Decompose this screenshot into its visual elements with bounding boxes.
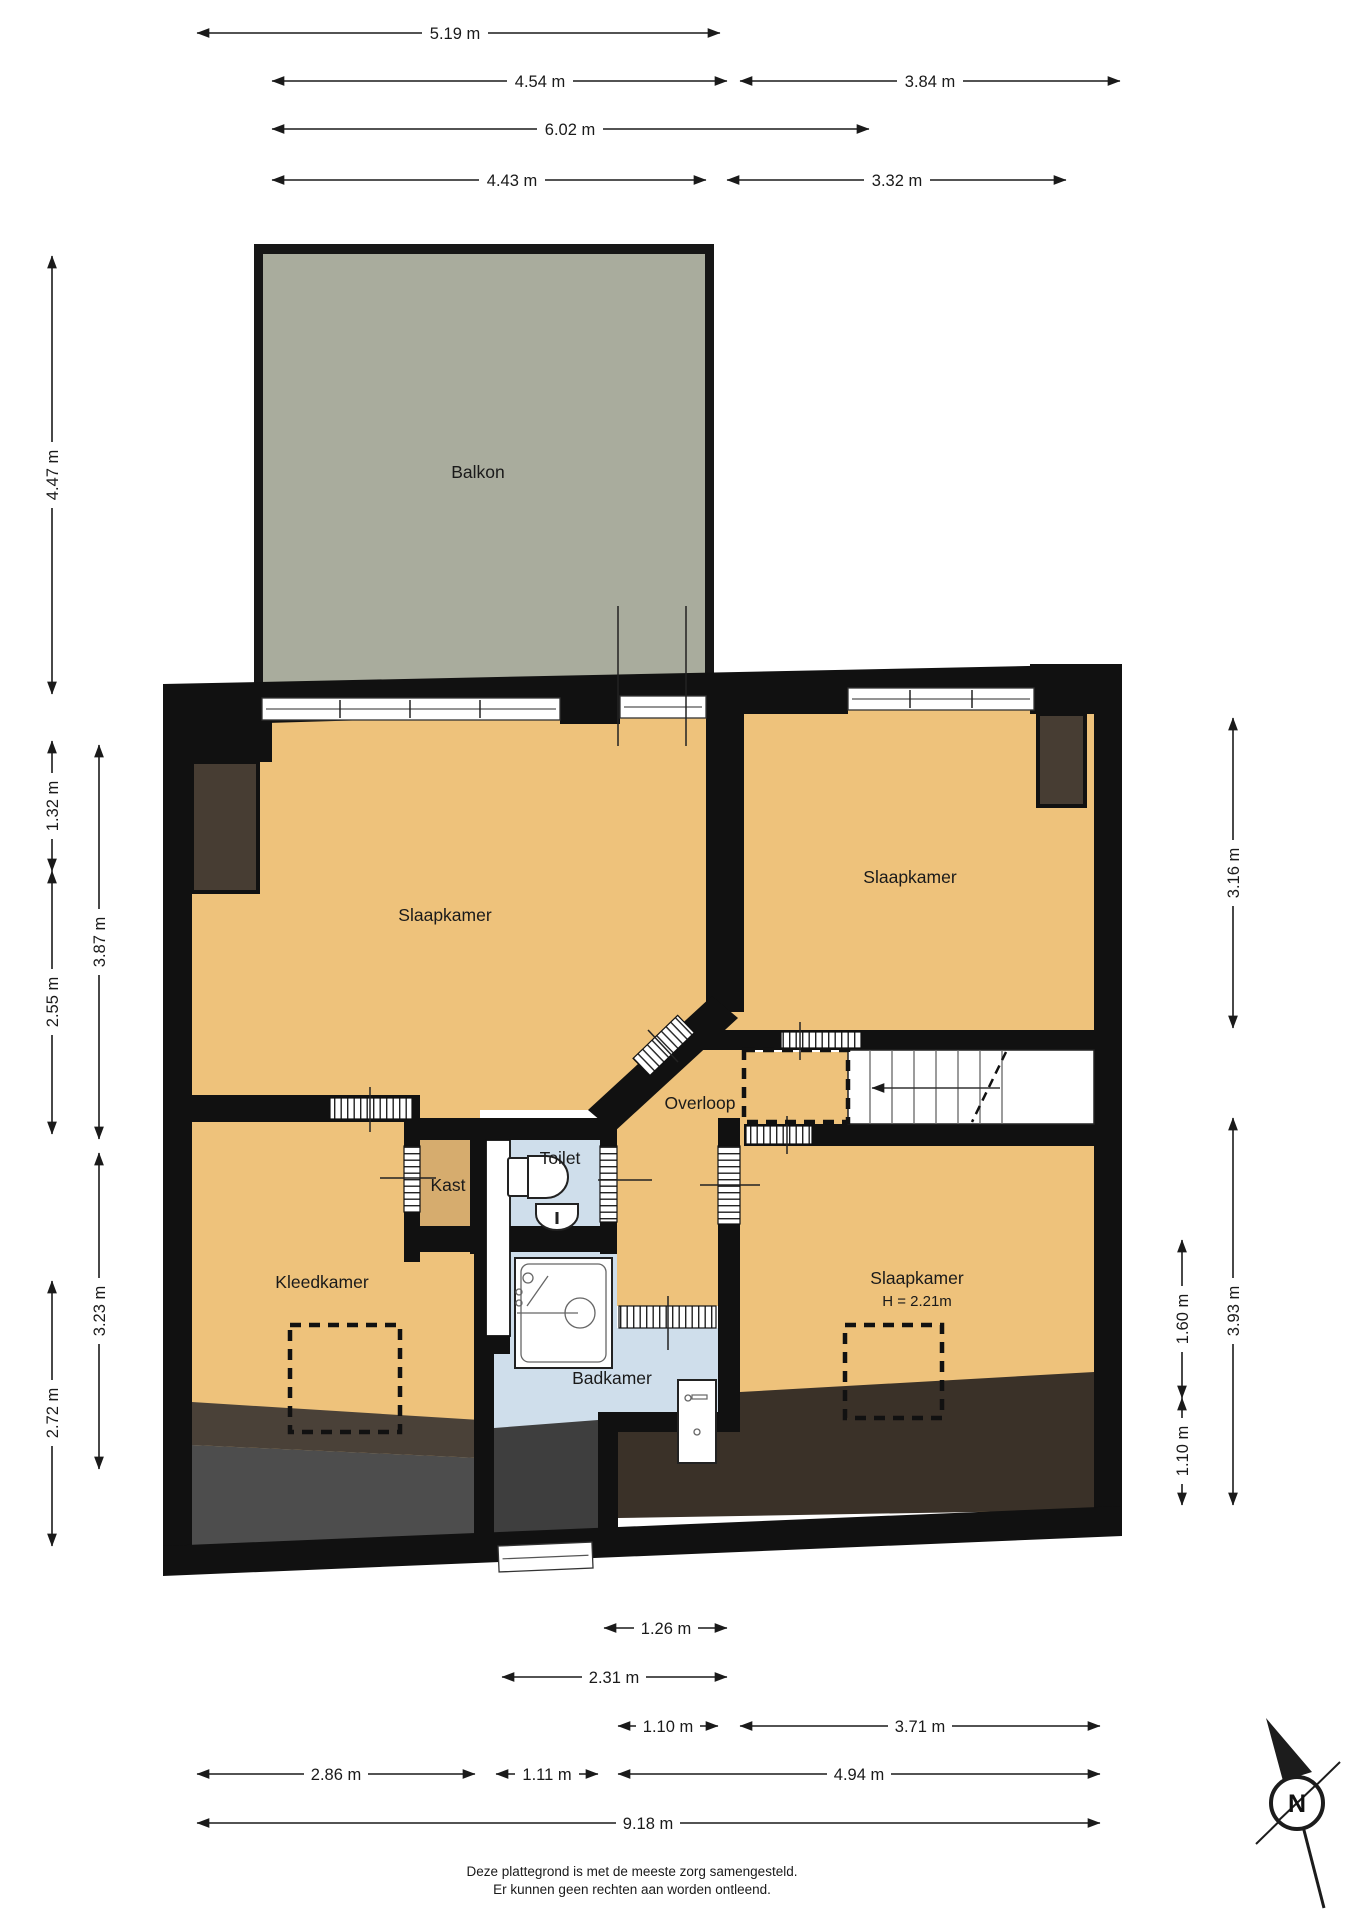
dim-3-84: 3.84 m: [740, 71, 1120, 91]
label-toilet: Toilet: [540, 1148, 581, 1168]
wall-corner-nw: [163, 684, 272, 762]
dim-2-86: 2.86 m: [197, 1764, 475, 1784]
label-overloop: Overloop: [664, 1093, 735, 1113]
svg-text:1.10 m: 1.10 m: [643, 1718, 693, 1736]
compass-north-label: N: [1288, 1790, 1306, 1818]
dim-2-31: 2.31 m: [502, 1667, 727, 1687]
label-slaapkamer-3: Slaapkamer: [870, 1268, 964, 1288]
dim-3-93: 3.93 m: [1223, 1118, 1243, 1505]
dim-1-60: 1.60 m: [1172, 1240, 1192, 1398]
footer-line-2: Er kunnen geen rechten aan worden ontlee…: [493, 1882, 771, 1897]
dim-4-47: 4.47 m: [42, 256, 62, 694]
dimensions-bottom: 1.26 m 2.31 m 1.10 m 3.71 m 2.86 m 1.11 …: [197, 1618, 1100, 1833]
floor-plan-canvas: Balkon Slaapkamer Slaapkamer Slaapkamer …: [0, 0, 1358, 1920]
wall-slaapkamer2-south: [700, 1030, 1094, 1050]
closet-slaapkamer1: [192, 762, 258, 892]
footer-line-1: Deze plattegrond is met de meeste zorg s…: [467, 1864, 798, 1879]
dim-1-10-right: 1.10 m: [1172, 1398, 1192, 1505]
svg-text:6.02 m: 6.02 m: [545, 121, 595, 139]
dim-3-32: 3.32 m: [727, 170, 1066, 190]
window-badkamer-south: [498, 1542, 593, 1572]
footer-disclaimer: Deze plattegrond is met de meeste zorg s…: [467, 1864, 798, 1897]
svg-text:4.94 m: 4.94 m: [834, 1766, 884, 1784]
svg-text:3.16 m: 3.16 m: [1225, 848, 1243, 898]
dim-3-23: 3.23 m: [89, 1153, 109, 1469]
svg-text:3.71 m: 3.71 m: [895, 1718, 945, 1736]
dim-6-02: 6.02 m: [272, 119, 869, 139]
window-slaapkamer2-north: [848, 688, 1034, 710]
dim-3-71: 3.71 m: [740, 1716, 1100, 1736]
dim-5-19: 5.19 m: [197, 23, 720, 43]
compass: N: [1256, 1718, 1340, 1908]
door-leaf-toilet: [486, 1140, 510, 1354]
svg-text:4.43 m: 4.43 m: [487, 172, 537, 190]
svg-text:2.72 m: 2.72 m: [44, 1388, 62, 1438]
dim-1-10-bottom: 1.10 m: [618, 1716, 718, 1736]
dim-4-43: 4.43 m: [272, 170, 706, 190]
svg-text:2.86 m: 2.86 m: [311, 1766, 361, 1784]
svg-text:1.10 m: 1.10 m: [1174, 1426, 1192, 1476]
dim-4-94: 4.94 m: [618, 1764, 1100, 1784]
svg-text:4.54 m: 4.54 m: [515, 73, 565, 91]
dim-2-55: 2.55 m: [42, 871, 62, 1134]
bathroom-cabinet: [678, 1380, 716, 1463]
wall-corner-ne: [1030, 664, 1122, 714]
svg-text:1.60 m: 1.60 m: [1174, 1294, 1192, 1344]
label-badkamer: Badkamer: [572, 1368, 652, 1388]
svg-text:3.32 m: 3.32 m: [872, 172, 922, 190]
label-kast: Kast: [430, 1175, 465, 1195]
svg-text:9.18 m: 9.18 m: [623, 1815, 673, 1833]
wall-window-pier: [560, 684, 620, 724]
svg-text:3.23 m: 3.23 m: [91, 1286, 109, 1336]
compass-needle-north: [1266, 1718, 1312, 1781]
dimensions-top: 5.19 m 4.54 m 3.84 m 6.02 m 4.43 m 3.32 …: [197, 23, 1120, 190]
stairs: [848, 1050, 1094, 1124]
dim-3-16: 3.16 m: [1223, 718, 1243, 1028]
svg-text:3.87 m: 3.87 m: [91, 917, 109, 967]
label-slaapkamer-1: Slaapkamer: [398, 905, 492, 925]
label-slaapkamer-3-height: H = 2.21m: [882, 1293, 952, 1310]
floor-plan-page: Balkon Slaapkamer Slaapkamer Slaapkamer …: [0, 0, 1358, 1920]
wall-badkamer-sw: [598, 1412, 618, 1535]
svg-text:2.31 m: 2.31 m: [589, 1669, 639, 1687]
label-slaapkamer-2: Slaapkamer: [863, 867, 957, 887]
svg-text:3.93 m: 3.93 m: [1225, 1286, 1243, 1336]
window-slaapkamer1-north: [262, 698, 560, 720]
slope-badkamer: [494, 1420, 598, 1537]
svg-text:2.55 m: 2.55 m: [44, 977, 62, 1027]
svg-text:5.19 m: 5.19 m: [430, 25, 480, 43]
label-kleedkamer: Kleedkamer: [275, 1272, 369, 1292]
shower: [515, 1258, 612, 1368]
dim-2-72: 2.72 m: [42, 1281, 62, 1546]
svg-text:1.11 m: 1.11 m: [522, 1766, 571, 1784]
dim-4-54: 4.54 m: [272, 71, 727, 91]
dimensions-right: 3.16 m 3.93 m 1.60 m 1.10 m: [1172, 718, 1243, 1505]
wall-badkamer-south: [598, 1412, 740, 1432]
dim-9-18: 9.18 m: [197, 1813, 1100, 1833]
wall-center: [706, 692, 744, 1012]
dim-3-87: 3.87 m: [89, 745, 109, 1139]
closet-slaapkamer2: [1038, 714, 1085, 806]
svg-text:3.84 m: 3.84 m: [905, 73, 955, 91]
dim-1-26: 1.26 m: [604, 1618, 727, 1638]
slope-kleedkamer-gray: [192, 1445, 480, 1546]
wall-left: [163, 684, 192, 1576]
dim-1-32: 1.32 m: [42, 741, 62, 871]
dim-1-11: 1.11 m: [496, 1764, 598, 1784]
hall-corridor: [617, 1124, 718, 1306]
svg-text:1.26 m: 1.26 m: [641, 1620, 691, 1638]
svg-text:4.47 m: 4.47 m: [44, 450, 62, 500]
wall-right: [1094, 664, 1122, 1536]
wall-kast-toilet-north: [404, 1118, 617, 1140]
svg-text:1.32 m: 1.32 m: [44, 781, 62, 831]
label-balkon: Balkon: [451, 462, 505, 482]
dimensions-left: 4.47 m 1.32 m 2.55 m 2.72 m 3.87 m 3.23: [42, 256, 109, 1546]
